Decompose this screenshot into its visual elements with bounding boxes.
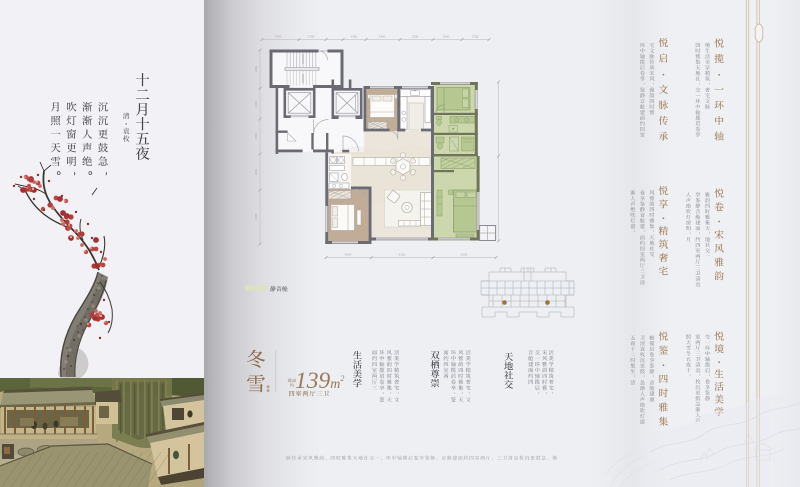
svg-text:3300: 3300 <box>412 35 419 39</box>
svg-text:6100: 6100 <box>399 253 406 257</box>
svg-text:5400: 5400 <box>254 213 258 220</box>
svg-text:3900: 3900 <box>254 65 258 72</box>
svg-text:2300: 2300 <box>351 35 358 39</box>
svg-text:4500: 4500 <box>345 253 352 257</box>
svg-text:3600: 3600 <box>254 168 258 175</box>
svg-text:3400: 3400 <box>379 35 386 39</box>
svg-text:3000: 3000 <box>254 100 258 107</box>
svg-text:2700: 2700 <box>472 35 479 39</box>
svg-text:2700: 2700 <box>308 35 315 39</box>
svg-text:2900: 2900 <box>443 35 450 39</box>
svg-text:6200: 6200 <box>461 253 468 257</box>
svg-text:3750: 3750 <box>275 35 282 39</box>
svg-text:3500: 3500 <box>254 132 258 139</box>
